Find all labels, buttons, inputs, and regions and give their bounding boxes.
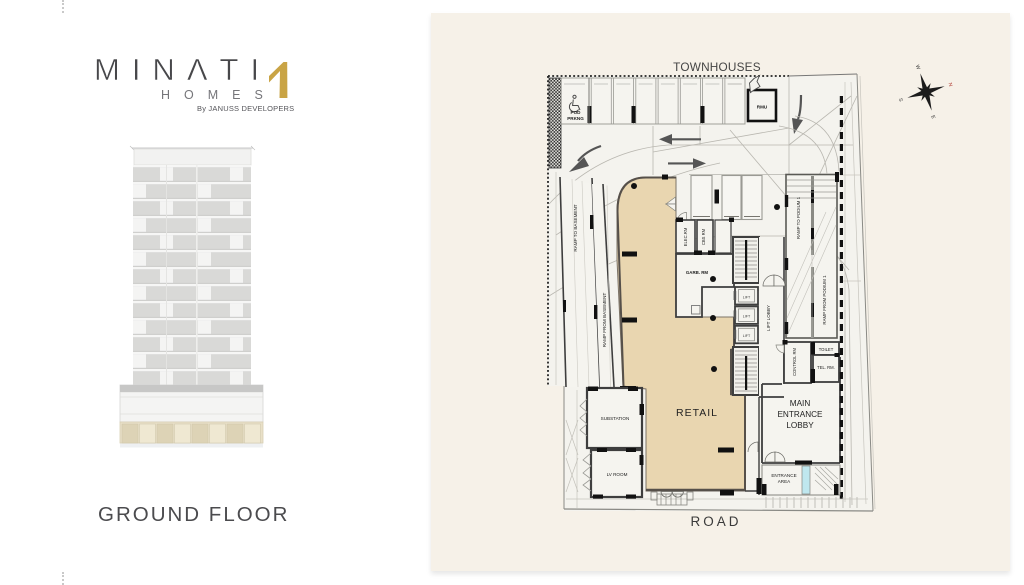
svg-text:W: W	[914, 64, 921, 71]
svg-text:LOBBY: LOBBY	[786, 421, 814, 430]
svg-text:RAMP FROM BASEMENT: RAMP FROM BASEMENT	[602, 293, 607, 348]
svg-text:TOWNHOUSES: TOWNHOUSES	[673, 60, 761, 74]
svg-text:SUBSTATION: SUBSTATION	[601, 416, 630, 421]
svg-text:ELEC.RM: ELEC.RM	[683, 227, 688, 246]
svg-text:LV ROOM: LV ROOM	[607, 472, 628, 477]
svg-text:E: E	[929, 115, 936, 121]
svg-text:CBS RM: CBS RM	[701, 228, 706, 245]
svg-text:ROAD: ROAD	[690, 514, 741, 529]
svg-text:RAMP TO BASEMENT: RAMP TO BASEMENT	[573, 204, 578, 251]
svg-text:TOILET: TOILET	[819, 347, 834, 352]
svg-text:MAIN: MAIN	[790, 399, 811, 408]
svg-text:CONTROL RM: CONTROL RM	[792, 347, 797, 376]
svg-text:LIFT: LIFT	[743, 334, 751, 338]
svg-text:AREA: AREA	[778, 479, 791, 484]
svg-text:LIFT: LIFT	[743, 295, 751, 299]
svg-text:RETAIL: RETAIL	[676, 407, 718, 419]
svg-text:S: S	[897, 97, 904, 103]
svg-text:RAMP TO PODIUM 1: RAMP TO PODIUM 1	[796, 196, 801, 239]
svg-text:GARB. RM: GARB. RM	[686, 270, 709, 275]
svg-text:RAMP FROM PODIUM 1: RAMP FROM PODIUM 1	[822, 275, 827, 325]
svg-text:PRKNG: PRKNG	[567, 116, 584, 121]
svg-text:ENTRANCE: ENTRANCE	[777, 410, 823, 419]
svg-text:RMU: RMU	[757, 105, 768, 110]
svg-text:ENTRANCE: ENTRANCE	[771, 473, 796, 478]
svg-text:LIFT LOBBY: LIFT LOBBY	[766, 305, 771, 331]
svg-text:LIFT: LIFT	[743, 315, 751, 319]
svg-text:N: N	[947, 82, 954, 88]
svg-text:TEL. RM.: TEL. RM.	[817, 365, 835, 370]
svg-text:POD: POD	[571, 110, 582, 115]
